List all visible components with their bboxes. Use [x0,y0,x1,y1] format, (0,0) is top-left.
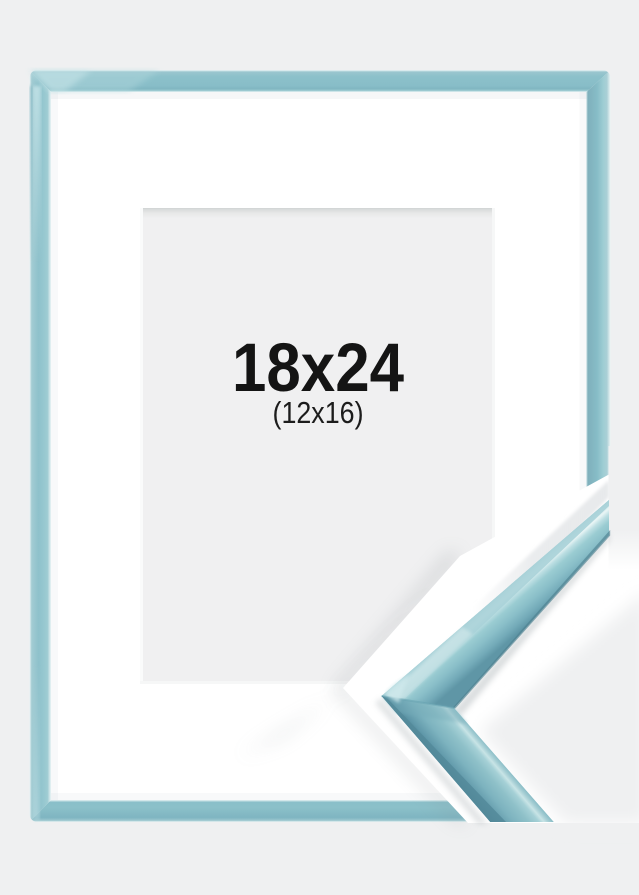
svg-text:(12x16): (12x16) [273,395,364,430]
